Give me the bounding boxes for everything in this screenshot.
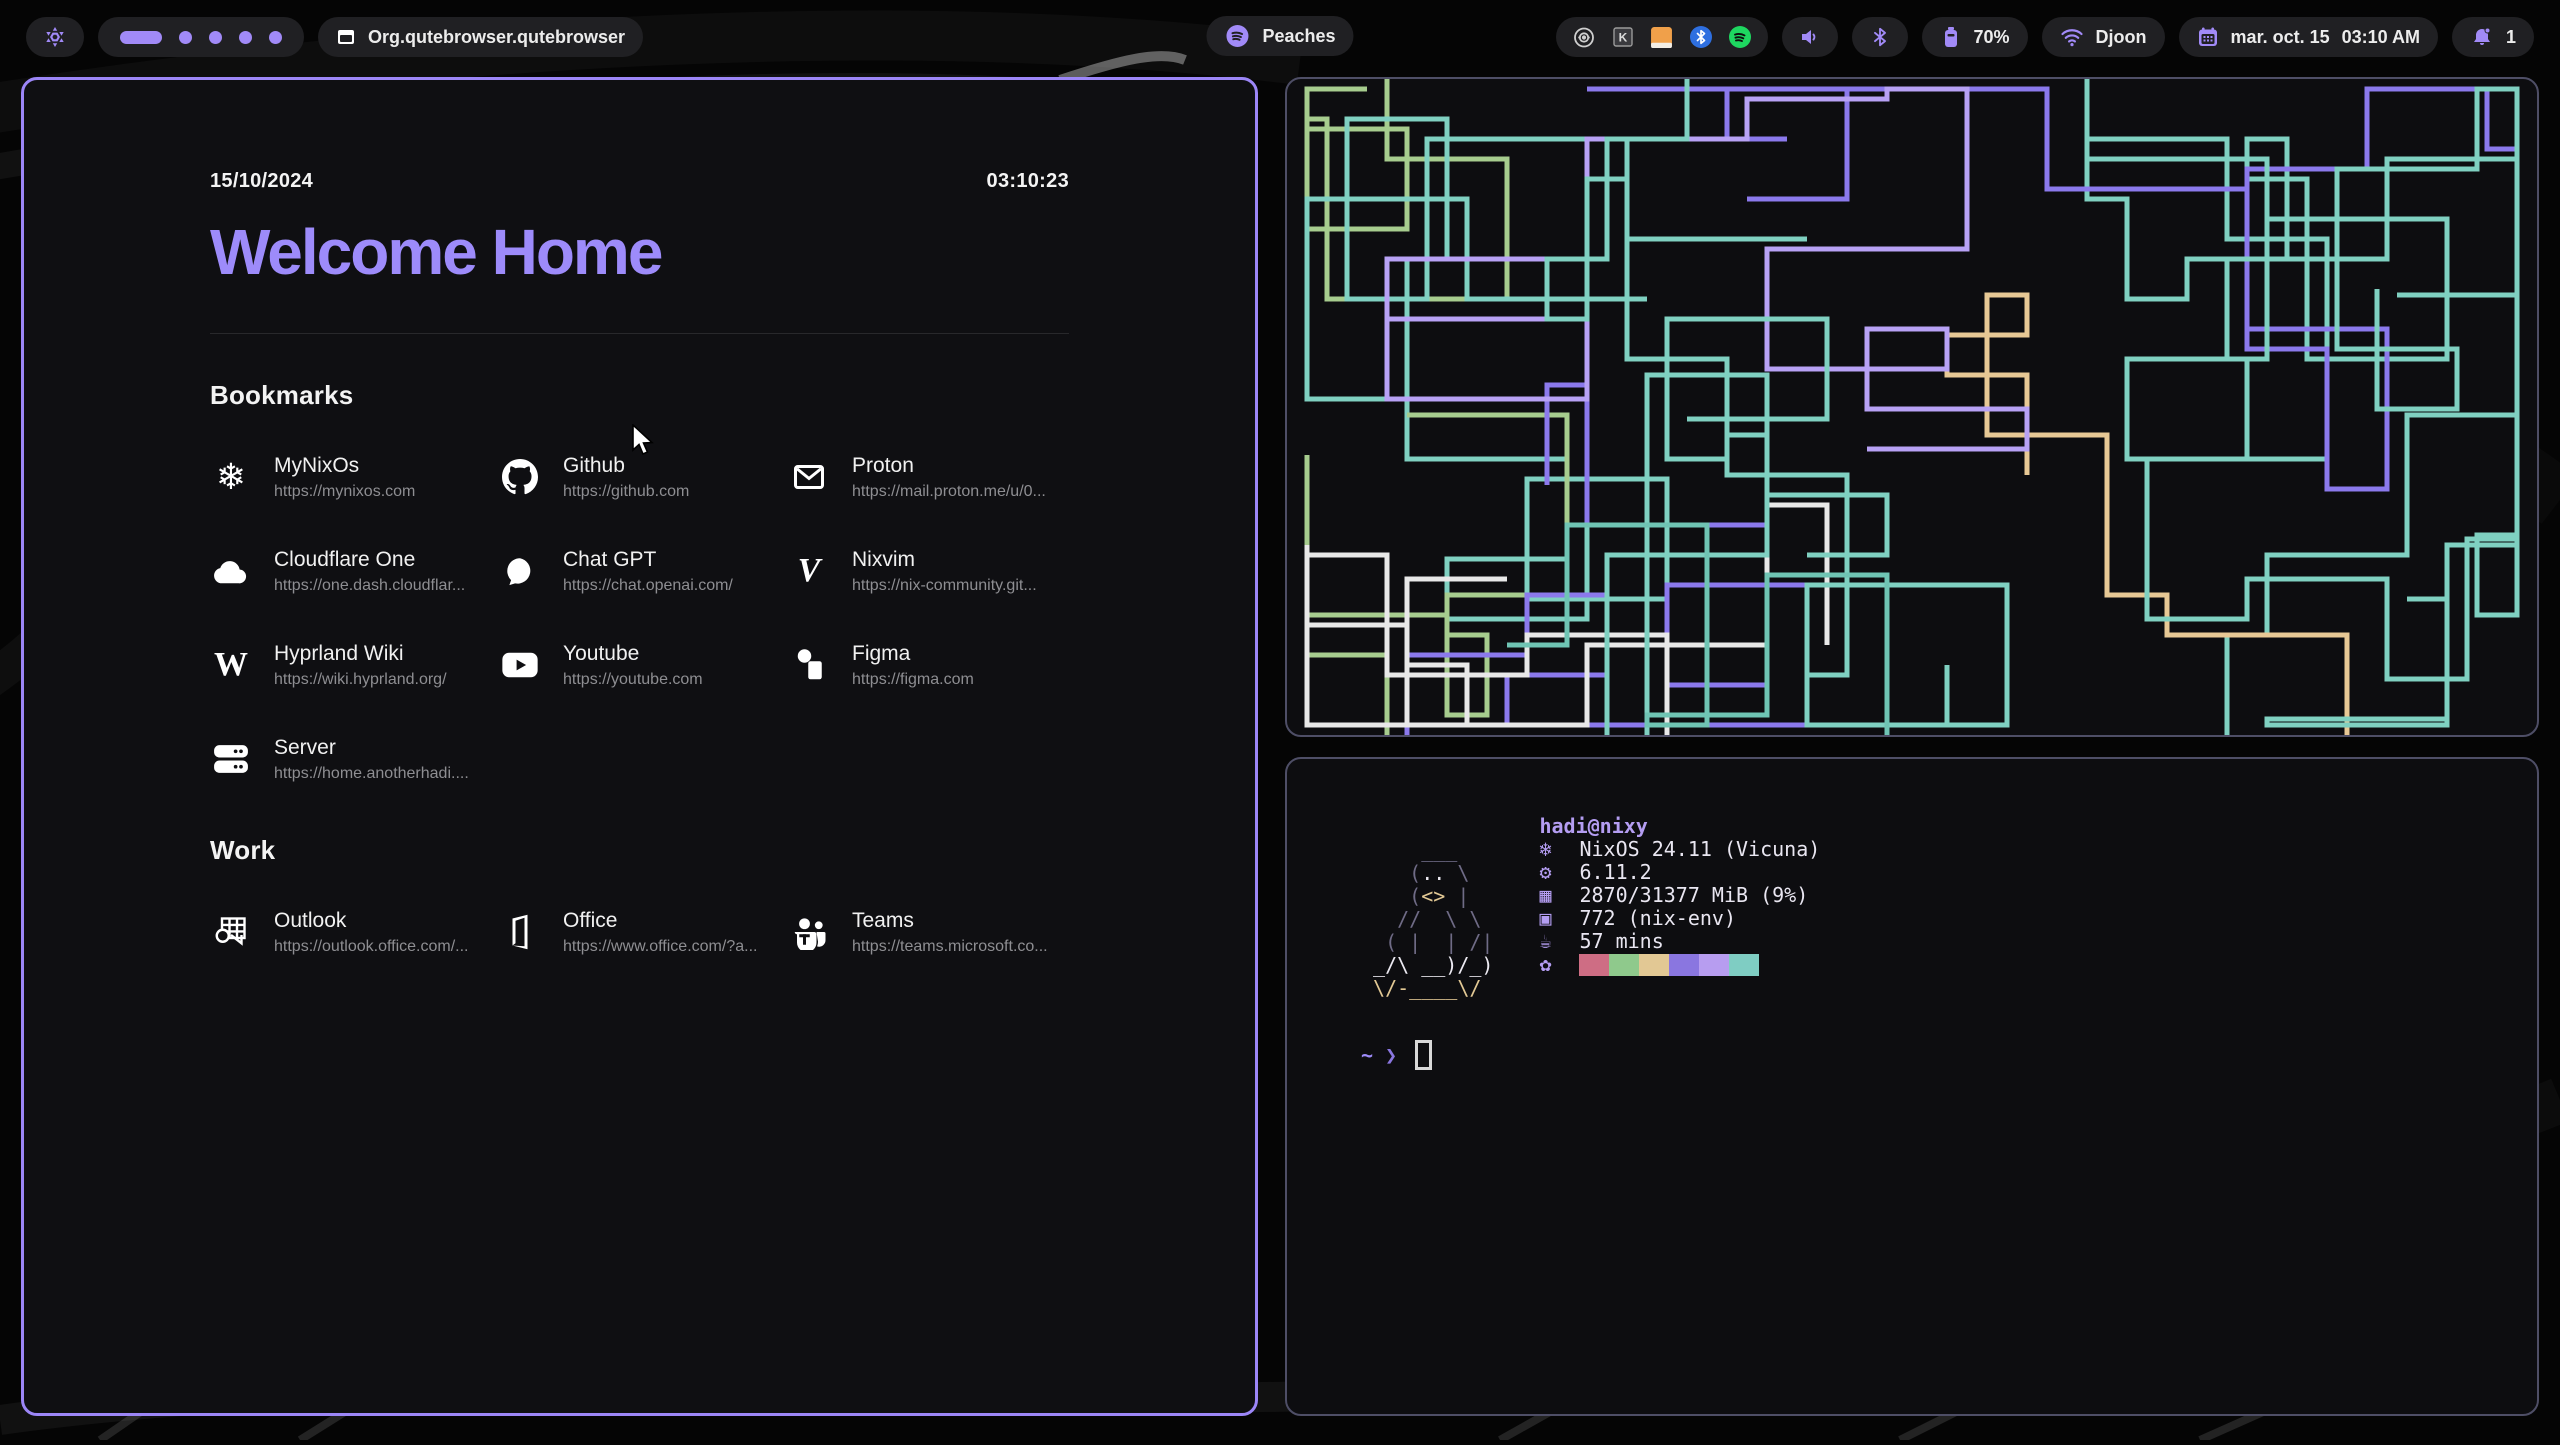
bookmark-text: Figmahttps://figma.com <box>852 642 974 689</box>
nix-snowflake-icon: ❄ <box>1539 838 1579 861</box>
battery-percent: 70% <box>1974 27 2010 48</box>
bookmark-item[interactable]: Chat GPThttps://chat.openai.com/ <box>499 541 788 601</box>
qutebrowser-window[interactable]: 15/10/2024 03:10:23 Welcome Home Bookmar… <box>21 77 1258 1416</box>
bookmark-url: https://home.anotherhadi.... <box>274 765 469 783</box>
nixos-logo-icon <box>43 25 67 49</box>
bookmark-item[interactable]: Teamshttps://teams.microsoft.co... <box>788 902 1077 962</box>
system-info-value: 2870/31377 MiB (9%) <box>1579 884 1808 907</box>
bookmark-name: Nixvim <box>852 548 1037 572</box>
bookmark-text: Officehttps://www.office.com/?a... <box>563 909 757 956</box>
window-icon <box>336 27 356 47</box>
bluetooth-pill[interactable] <box>1852 17 1908 57</box>
kernel-icon: ⚙ <box>1539 861 1579 884</box>
bookmark-url: https://teams.microsoft.co... <box>852 938 1048 956</box>
system-info-value: 57 mins <box>1579 930 1663 953</box>
bookmark-sections: Bookmarks❄MyNixOshttps://mynixos.comGith… <box>210 380 1069 962</box>
bookmark-name: Proton <box>852 454 1046 478</box>
ascii-line: // \ \ <box>1361 908 1493 931</box>
bookmark-item[interactable]: Serverhttps://home.anotherhadi.... <box>210 729 499 789</box>
svg-text:K: K <box>1618 31 1627 45</box>
battery-icon <box>1940 25 1962 49</box>
packages-icon: ▣ <box>1539 907 1579 930</box>
nixos-icon: ❄ <box>210 456 252 498</box>
bookmark-text: Teamshttps://teams.microsoft.co... <box>852 909 1048 956</box>
chat-icon <box>499 550 541 592</box>
bookmark-url: https://mynixos.com <box>274 483 415 501</box>
launcher-button[interactable] <box>26 17 84 57</box>
prompt-symbol: ❯ <box>1385 1044 1397 1067</box>
pipe-line <box>1387 89 2027 449</box>
bookmark-name: Office <box>563 909 757 933</box>
palette-swatch <box>1639 954 1669 976</box>
pipes-art <box>1287 79 2537 735</box>
bell-icon <box>2470 25 2494 49</box>
workspace-dot[interactable] <box>239 31 252 44</box>
bookmark-url: https://mail.proton.me/u/0... <box>852 483 1046 501</box>
pipe-line <box>1747 89 2517 489</box>
bluetooth-icon <box>1869 26 1891 48</box>
workspace-dot[interactable] <box>179 31 192 44</box>
bookmark-text: Protonhttps://mail.proton.me/u/0... <box>852 454 1046 501</box>
battery-pill[interactable]: 70% <box>1922 17 2028 57</box>
media-track-label: Peaches <box>1262 26 1335 47</box>
ascii-line: ( | | /| <box>1361 931 1493 954</box>
youtube-icon <box>499 644 541 686</box>
bookmark-text: Youtubehttps://youtube.com <box>563 642 703 689</box>
startpage: 15/10/2024 03:10:23 Welcome Home Bookmar… <box>24 80 1255 962</box>
keepass-icon[interactable]: K <box>1611 25 1635 49</box>
bookmark-name: Hyprland Wiki <box>274 642 447 666</box>
system-info-value: 772 (nix-env) <box>1579 907 1736 930</box>
spotify-badge-icon[interactable] <box>1728 25 1752 49</box>
bookmark-url: https://wiki.hyprland.org/ <box>274 671 447 689</box>
system-info-row: ▣772 (nix-env) <box>1539 907 1820 930</box>
palette-icon: ✿ <box>1539 953 1579 976</box>
bookmark-item[interactable]: Cloudflare Onehttps://one.dash.cloudflar… <box>210 541 499 601</box>
prompt-path: ~ <box>1361 1044 1373 1067</box>
bookmark-name: MyNixOs <box>274 454 415 478</box>
system-info-value: NixOS 24.11 (Vicuna) <box>1579 838 1820 861</box>
github-icon <box>499 456 541 498</box>
palette-swatch <box>1609 954 1639 976</box>
bookmark-text: Nixvimhttps://nix-community.git... <box>852 548 1037 595</box>
bookmark-url: https://youtube.com <box>563 671 703 689</box>
divider <box>210 333 1069 334</box>
bookmark-grid: ❄MyNixOshttps://mynixos.comGithubhttps:/… <box>210 447 1069 789</box>
bookmark-name: Teams <box>852 909 1048 933</box>
bookmark-item[interactable]: Youtubehttps://youtube.com <box>499 635 788 695</box>
system-tray[interactable]: K <box>1556 17 1768 57</box>
workspace-active[interactable] <box>120 31 162 44</box>
bookmark-url: https://www.office.com/?a... <box>563 938 757 956</box>
bookmark-item[interactable]: ❄MyNixOshttps://mynixos.com <box>210 447 499 507</box>
user-host: hadi@nixy <box>1539 815 1820 838</box>
palette-swatch <box>1669 954 1699 976</box>
workspace-dot[interactable] <box>209 31 222 44</box>
bookmark-item[interactable]: WHyprland Wikihttps://wiki.hyprland.org/ <box>210 635 499 695</box>
speaker-icon <box>1798 25 1822 49</box>
network-ssid: Djoon <box>2096 27 2147 48</box>
palette-swatch <box>1579 954 1609 976</box>
section-heading: Bookmarks <box>210 380 1069 411</box>
bookmark-url: https://outlook.office.com/... <box>274 938 468 956</box>
clock-date: mar. oct. 15 <box>2231 27 2330 48</box>
palette-swatch <box>1699 954 1729 976</box>
calendar-icon <box>2197 26 2219 48</box>
bookmark-name: Chat GPT <box>563 548 733 572</box>
bookmark-name: Youtube <box>563 642 703 666</box>
bookmark-item[interactable]: Figmahttps://figma.com <box>788 635 1077 695</box>
bookmark-url: https://one.dash.cloudflar... <box>274 577 465 595</box>
wikipedia-icon: W <box>210 644 252 686</box>
clock-pill[interactable]: mar. oct. 15 03:10 AM <box>2179 17 2438 57</box>
notifications-pill[interactable]: 1 <box>2452 17 2534 57</box>
page-title: Welcome Home <box>210 215 1069 289</box>
bookmark-url: https://chat.openai.com/ <box>563 577 733 595</box>
startpage-date: 15/10/2024 <box>210 170 313 193</box>
ascii-logo: ___ (.. \ (<> | // \ \ ( | | /| _/\ __)/… <box>1361 839 1493 1000</box>
volume-pill[interactable] <box>1782 17 1838 57</box>
wifi-icon <box>2060 26 2084 48</box>
workspaces-indicator[interactable] <box>98 17 304 57</box>
teams-icon <box>788 911 830 953</box>
terminal-cursor <box>1415 1040 1432 1070</box>
bookmark-item[interactable]: Outlookhttps://outlook.office.com/... <box>210 902 499 962</box>
ascii-line: (<> | <box>1361 885 1493 908</box>
ascii-line: ___ <box>1361 839 1493 862</box>
terminal-palette <box>1579 954 1759 976</box>
bookmark-text: Serverhttps://home.anotherhadi.... <box>274 736 469 783</box>
bookmark-text: Cloudflare Onehttps://one.dash.cloudflar… <box>274 548 465 595</box>
pipes-terminal-window[interactable] <box>1285 77 2539 737</box>
bookmark-item[interactable]: Protonhttps://mail.proton.me/u/0... <box>788 447 1077 507</box>
bookmark-name: Github <box>563 454 689 478</box>
fetch-terminal-window[interactable]: ___ (.. \ (<> | // \ \ ( | | /| _/\ __)/… <box>1285 757 2539 1416</box>
nixvim-icon: V <box>788 550 830 592</box>
bookmark-url: https://nix-community.git... <box>852 577 1037 595</box>
clock-time: 03:10 AM <box>2342 27 2420 48</box>
network-pill[interactable]: Djoon <box>2042 17 2165 57</box>
ascii-line: \/-____\/ <box>1361 977 1493 1000</box>
spotify-icon <box>1224 23 1250 49</box>
office-icon <box>499 911 541 953</box>
outlook-icon <box>210 911 252 953</box>
system-info-rows: ❄NixOS 24.11 (Vicuna)⚙6.11.2▦2870/31377 … <box>1539 838 1820 953</box>
bookmark-name: Figma <box>852 642 974 666</box>
mouse-cursor <box>629 424 659 463</box>
server-icon <box>210 738 252 780</box>
bookmark-text: Githubhttps://github.com <box>563 454 689 501</box>
focused-window-pill[interactable]: Org.qutebrowser.qutebrowser <box>318 17 643 57</box>
system-info-value: 6.11.2 <box>1579 861 1651 884</box>
section-heading: Work <box>210 835 1069 866</box>
memory-icon: ▦ <box>1539 884 1579 907</box>
cloud-icon <box>210 550 252 592</box>
bookmark-section: WorkOutlookhttps://outlook.office.com/..… <box>210 835 1069 962</box>
focused-window-title: Org.qutebrowser.qutebrowser <box>368 27 625 48</box>
bookmark-text: MyNixOshttps://mynixos.com <box>274 454 415 501</box>
system-info-row: ☕57 mins <box>1539 930 1820 953</box>
ascii-line: (.. \ <box>1361 862 1493 885</box>
system-info-row: ❄NixOS 24.11 (Vicuna) <box>1539 838 1820 861</box>
bookmark-name: Server <box>274 736 469 760</box>
ascii-line: _/\ __)/_) <box>1361 954 1493 977</box>
bookmark-name: Cloudflare One <box>274 548 465 572</box>
notification-count: 1 <box>2506 27 2516 48</box>
uptime-icon: ☕ <box>1539 930 1579 953</box>
shell-prompt[interactable]: ~ ❯ <box>1361 1040 2537 1070</box>
bookmark-url: https://github.com <box>563 483 689 501</box>
system-info-row: ⚙6.11.2 <box>1539 861 1820 884</box>
palette-swatch <box>1729 954 1759 976</box>
top-bar: Org.qutebrowser.qutebrowser Peaches K <box>0 16 2560 58</box>
figma-icon <box>788 644 830 686</box>
bookmark-text: Chat GPThttps://chat.openai.com/ <box>563 548 733 595</box>
notes-icon[interactable] <box>1650 25 1674 49</box>
bookmark-name: Outlook <box>274 909 468 933</box>
palette-row: ✿ <box>1539 953 1820 976</box>
media-player-pill[interactable]: Peaches <box>1206 16 1353 56</box>
bookmark-grid: Outlookhttps://outlook.office.com/...Off… <box>210 902 1069 962</box>
lens-icon[interactable] <box>1572 25 1596 49</box>
bookmark-text: Hyprland Wikihttps://wiki.hyprland.org/ <box>274 642 447 689</box>
bookmark-item[interactable]: VNixvimhttps://nix-community.git... <box>788 541 1077 601</box>
startpage-time: 03:10:23 <box>987 170 1069 193</box>
bookmark-item[interactable]: Officehttps://www.office.com/?a... <box>499 902 788 962</box>
bookmark-text: Outlookhttps://outlook.office.com/... <box>274 909 468 956</box>
workspace-dot[interactable] <box>269 31 282 44</box>
pipe-line <box>1347 399 1667 619</box>
bluetooth-badge-icon[interactable] <box>1689 25 1713 49</box>
bookmark-url: https://figma.com <box>852 671 974 689</box>
mail-icon <box>788 456 830 498</box>
system-info-row: ▦2870/31377 MiB (9%) <box>1539 884 1820 907</box>
